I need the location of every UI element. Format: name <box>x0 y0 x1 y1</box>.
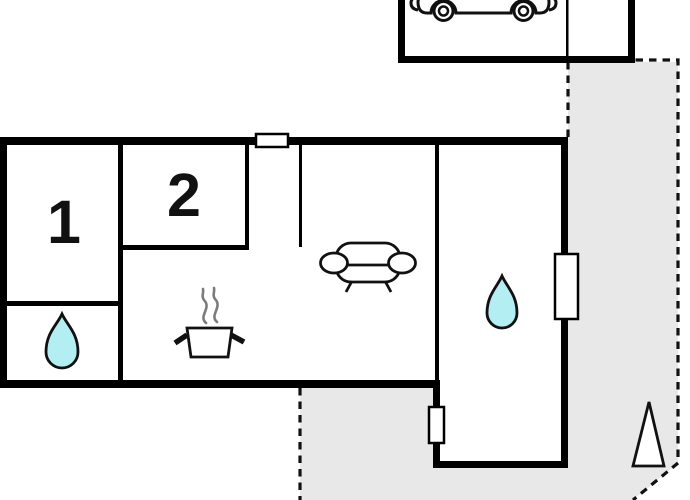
wall-livingroom-right <box>435 145 439 380</box>
garage-divider-wall <box>566 0 569 56</box>
room-2-label: 2 <box>167 161 201 229</box>
window-right-wall <box>555 254 578 319</box>
window-top-wall <box>256 134 288 147</box>
sofa-armrest-right <box>389 253 416 273</box>
wall-entry-partition <box>299 145 302 247</box>
wall-room2-right <box>245 145 249 250</box>
car-hubcap-right <box>519 7 528 16</box>
room-1-label: 1 <box>47 188 81 256</box>
garage-wall-right <box>628 0 635 63</box>
wall-bottom <box>0 380 440 388</box>
wall-bathroom-top <box>7 301 120 306</box>
wall-left <box>0 137 7 388</box>
car-hubcap-left <box>439 7 448 16</box>
wall-room1-right <box>118 145 123 380</box>
floor-plan-svg: 1 2 <box>0 0 690 500</box>
wall-room2-bottom <box>120 245 249 250</box>
sofa-armrest-left <box>321 253 348 273</box>
floor-plan-image: 1 2 <box>0 0 690 500</box>
garage-wall-bottom <box>398 56 635 63</box>
wall-extension-bottom <box>433 461 568 468</box>
garage <box>398 0 635 63</box>
window-extension-wall <box>429 407 444 443</box>
pot-body <box>187 328 232 357</box>
garage-wall-left <box>398 0 405 63</box>
